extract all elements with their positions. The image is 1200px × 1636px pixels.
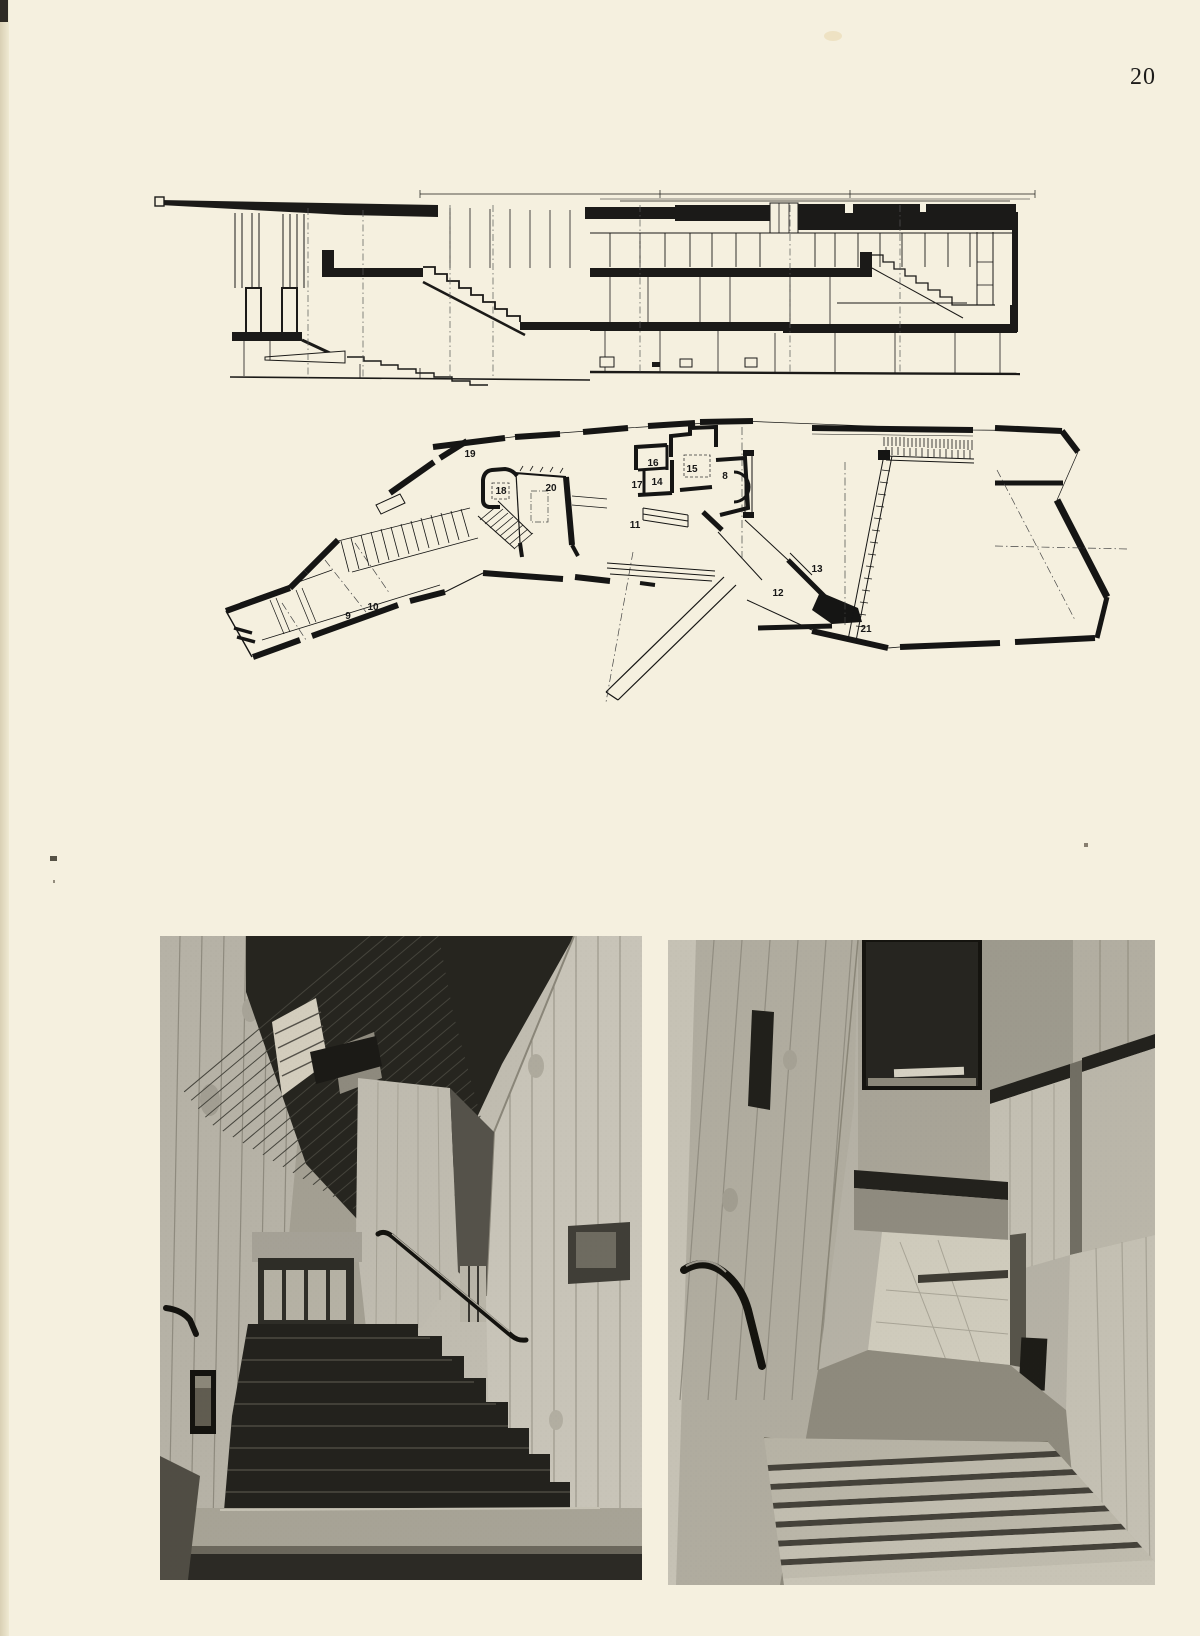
room-number-18: 18 <box>495 486 507 497</box>
scanned-book-page: 20 <box>0 0 1200 1636</box>
photo-stair-hall-upward <box>134 826 664 1580</box>
room-number-15: 15 <box>686 464 698 475</box>
photo-stairwell-downward <box>668 940 1155 1585</box>
room-number-19: 19 <box>464 449 476 460</box>
room-number-17: 17 <box>631 480 643 491</box>
room-number-13: 13 <box>811 564 823 575</box>
room-number-11: 11 <box>630 520 641 531</box>
room-number-16: 16 <box>647 458 659 469</box>
room-number-9: 9 <box>345 611 351 622</box>
floor-plan-room-numbers: 19182016151714811131221910 <box>345 449 872 635</box>
floor-plan-drawing <box>226 421 1128 702</box>
room-number-20: 20 <box>545 483 557 494</box>
room-number-12: 12 <box>772 588 784 599</box>
room-number-10: 10 <box>367 602 379 613</box>
room-number-21: 21 <box>860 624 872 635</box>
room-number-14: 14 <box>651 477 663 488</box>
scan-artifacts <box>50 31 1088 883</box>
page-artwork: 19182016151714811131221910 <box>0 0 1200 1636</box>
building-section-drawing <box>155 190 1035 385</box>
room-number-8: 8 <box>722 471 728 482</box>
